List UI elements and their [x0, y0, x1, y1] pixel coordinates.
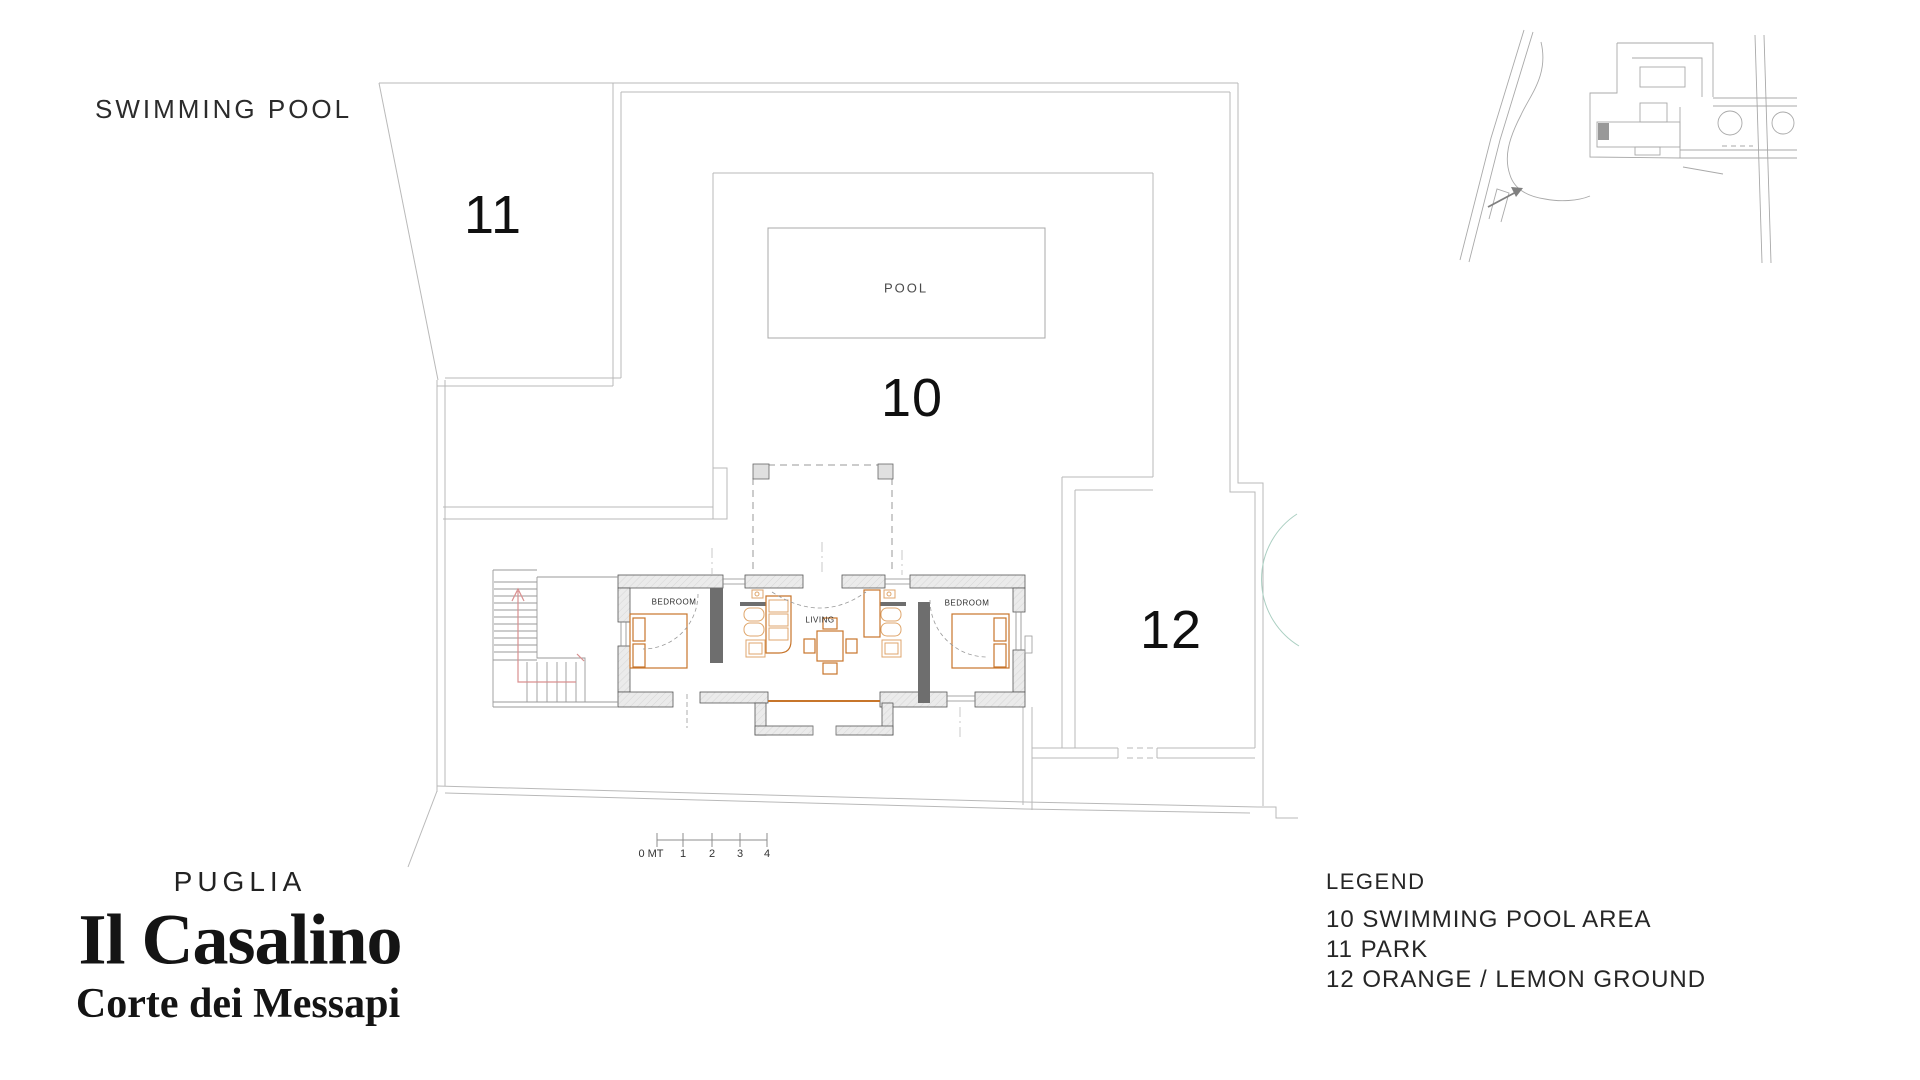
road-right: [1755, 35, 1771, 263]
mini-building: [1597, 122, 1680, 147]
bedroom-left-label: BEDROOM: [652, 598, 697, 607]
pool-room-label: POOL: [884, 281, 928, 296]
legend-item-number: 12: [1326, 966, 1355, 993]
pergola-post-right: [878, 464, 893, 479]
legend-item-park: 11 PARK: [1326, 935, 1706, 965]
location-minimap: [1460, 30, 1797, 263]
mini-tree: [1772, 112, 1794, 134]
door-swings: [643, 592, 987, 728]
legend-item-label: ORANGE / LEMON GROUND: [1362, 966, 1706, 993]
area-label-pool-area: 10: [881, 367, 943, 429]
bedroom-right-label: BEDROOM: [945, 599, 990, 608]
scale-tick-label: 1: [680, 848, 686, 860]
legend-item-label: PARK: [1361, 936, 1429, 963]
scale-zero-label: 0 MT: [638, 848, 663, 860]
area-label-orange-ground: 12: [1140, 599, 1202, 661]
pergola: [753, 464, 893, 573]
legend-item-pool-area: 10 SWIMMING POOL AREA: [1326, 905, 1706, 935]
title-region: PUGLIA: [174, 866, 307, 898]
sheet-area-title: SWIMMING POOL: [95, 94, 352, 125]
scale-tick-label: 4: [764, 848, 770, 860]
scale-tick-label: 2: [709, 848, 715, 860]
site-curve: [1507, 42, 1590, 201]
legend-item-orange-ground: 12 ORANGE / LEMON GROUND: [1326, 965, 1706, 995]
legend-item-number: 11: [1326, 936, 1353, 963]
road-left: [1469, 32, 1533, 262]
scale-tick-label: 3: [737, 848, 743, 860]
tree-symbol: [1262, 514, 1299, 646]
legend-title: LEGEND: [1326, 869, 1706, 895]
scale-bar: [657, 833, 767, 847]
dining-table: [817, 631, 843, 661]
legend-item-label: SWIMMING POOL AREA: [1362, 906, 1651, 933]
plot-outline: [1617, 43, 1713, 97]
staircase: [493, 570, 618, 707]
page-title: Il Casalino: [78, 899, 401, 982]
legend: LEGEND 10 SWIMMING POOL AREA 11 PARK 12 …: [1326, 869, 1706, 995]
cabinet: [864, 590, 880, 637]
page-subtitle: Corte dei Messapi: [76, 980, 400, 1028]
legend-item-number: 10: [1326, 906, 1355, 933]
living-label: LIVING: [805, 616, 834, 625]
arrow-up-right-icon: [1488, 191, 1518, 207]
area-label-park: 11: [464, 184, 522, 246]
pergola-post-left: [753, 464, 769, 479]
plan-sheet: SWIMMING POOL 11 10 12 POOL BEDROOM BEDR…: [0, 0, 1920, 1080]
mini-pool: [1640, 67, 1685, 87]
mini-tree: [1718, 111, 1742, 135]
